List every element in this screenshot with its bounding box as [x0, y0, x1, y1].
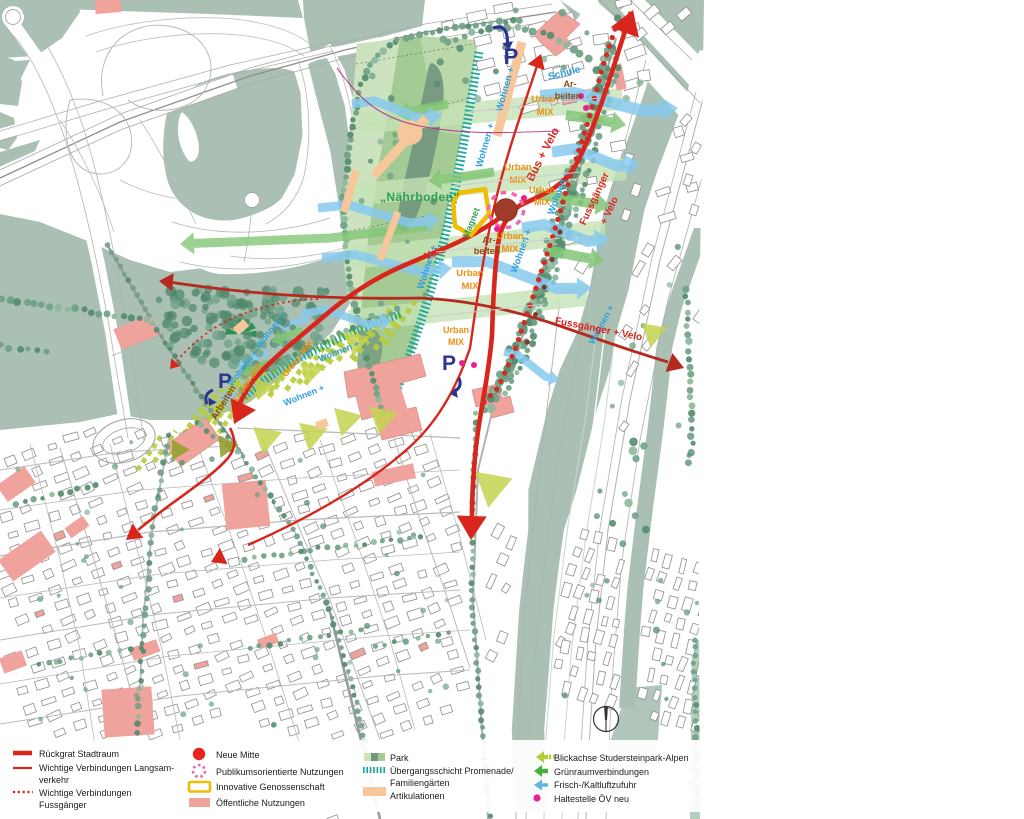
svg-text:Öffentliche Nutzungen: Öffentliche Nutzungen — [216, 798, 305, 808]
svg-text:Urban: Urban — [456, 268, 484, 279]
svg-text:MIX: MIX — [448, 337, 464, 347]
svg-text:Übergangsschicht Promenade/: Übergangsschicht Promenade/ — [390, 766, 514, 776]
svg-text:Rückgrat Stadtraum: Rückgrat Stadtraum — [39, 749, 119, 759]
svg-text:Innovative Genossenschaft: Innovative Genossenschaft — [216, 782, 325, 792]
svg-text:Urban: Urban — [443, 325, 469, 335]
svg-text:Wichtige Verbindungen Langsam-: Wichtige Verbindungen Langsam- — [39, 763, 174, 773]
svg-text:Publikumsorientierte Nutzungen: Publikumsorientierte Nutzungen — [216, 767, 344, 777]
svg-text:Haltestelle ÖV neu: Haltestelle ÖV neu — [554, 794, 629, 804]
svg-text:Blickachse Studersteinpark-Alp: Blickachse Studersteinpark-Alpen — [554, 753, 689, 763]
svg-text:P: P — [442, 352, 456, 375]
svg-text:MIX: MIX — [537, 107, 555, 118]
svg-text:Ar-: Ar- — [564, 79, 577, 89]
svg-text:Neue Mitte: Neue Mitte — [216, 750, 260, 760]
svg-text:MIX: MIX — [462, 281, 480, 292]
svg-text:Fussgänger: Fussgänger — [39, 800, 87, 810]
svg-text:Ar-: Ar- — [483, 235, 496, 245]
svg-text:Park: Park — [390, 753, 409, 763]
svg-text:„Nährboden“: „Nährboden“ — [380, 190, 460, 204]
svg-text:beiten: beiten — [555, 91, 582, 101]
svg-text:Urban: Urban — [529, 185, 555, 195]
svg-text:Artikulationen: Artikulationen — [390, 791, 445, 801]
svg-text:P: P — [504, 44, 519, 69]
svg-text:Familiengärten: Familiengärten — [390, 778, 450, 788]
svg-text:Grünraumverbindungen: Grünraumverbindungen — [554, 767, 649, 777]
svg-text:Frisch-/Kaltluftzufuhr: Frisch-/Kaltluftzufuhr — [554, 780, 637, 790]
svg-text:Wichtige Verbindungen: Wichtige Verbindungen — [39, 788, 132, 798]
svg-text:verkehr: verkehr — [39, 775, 69, 785]
